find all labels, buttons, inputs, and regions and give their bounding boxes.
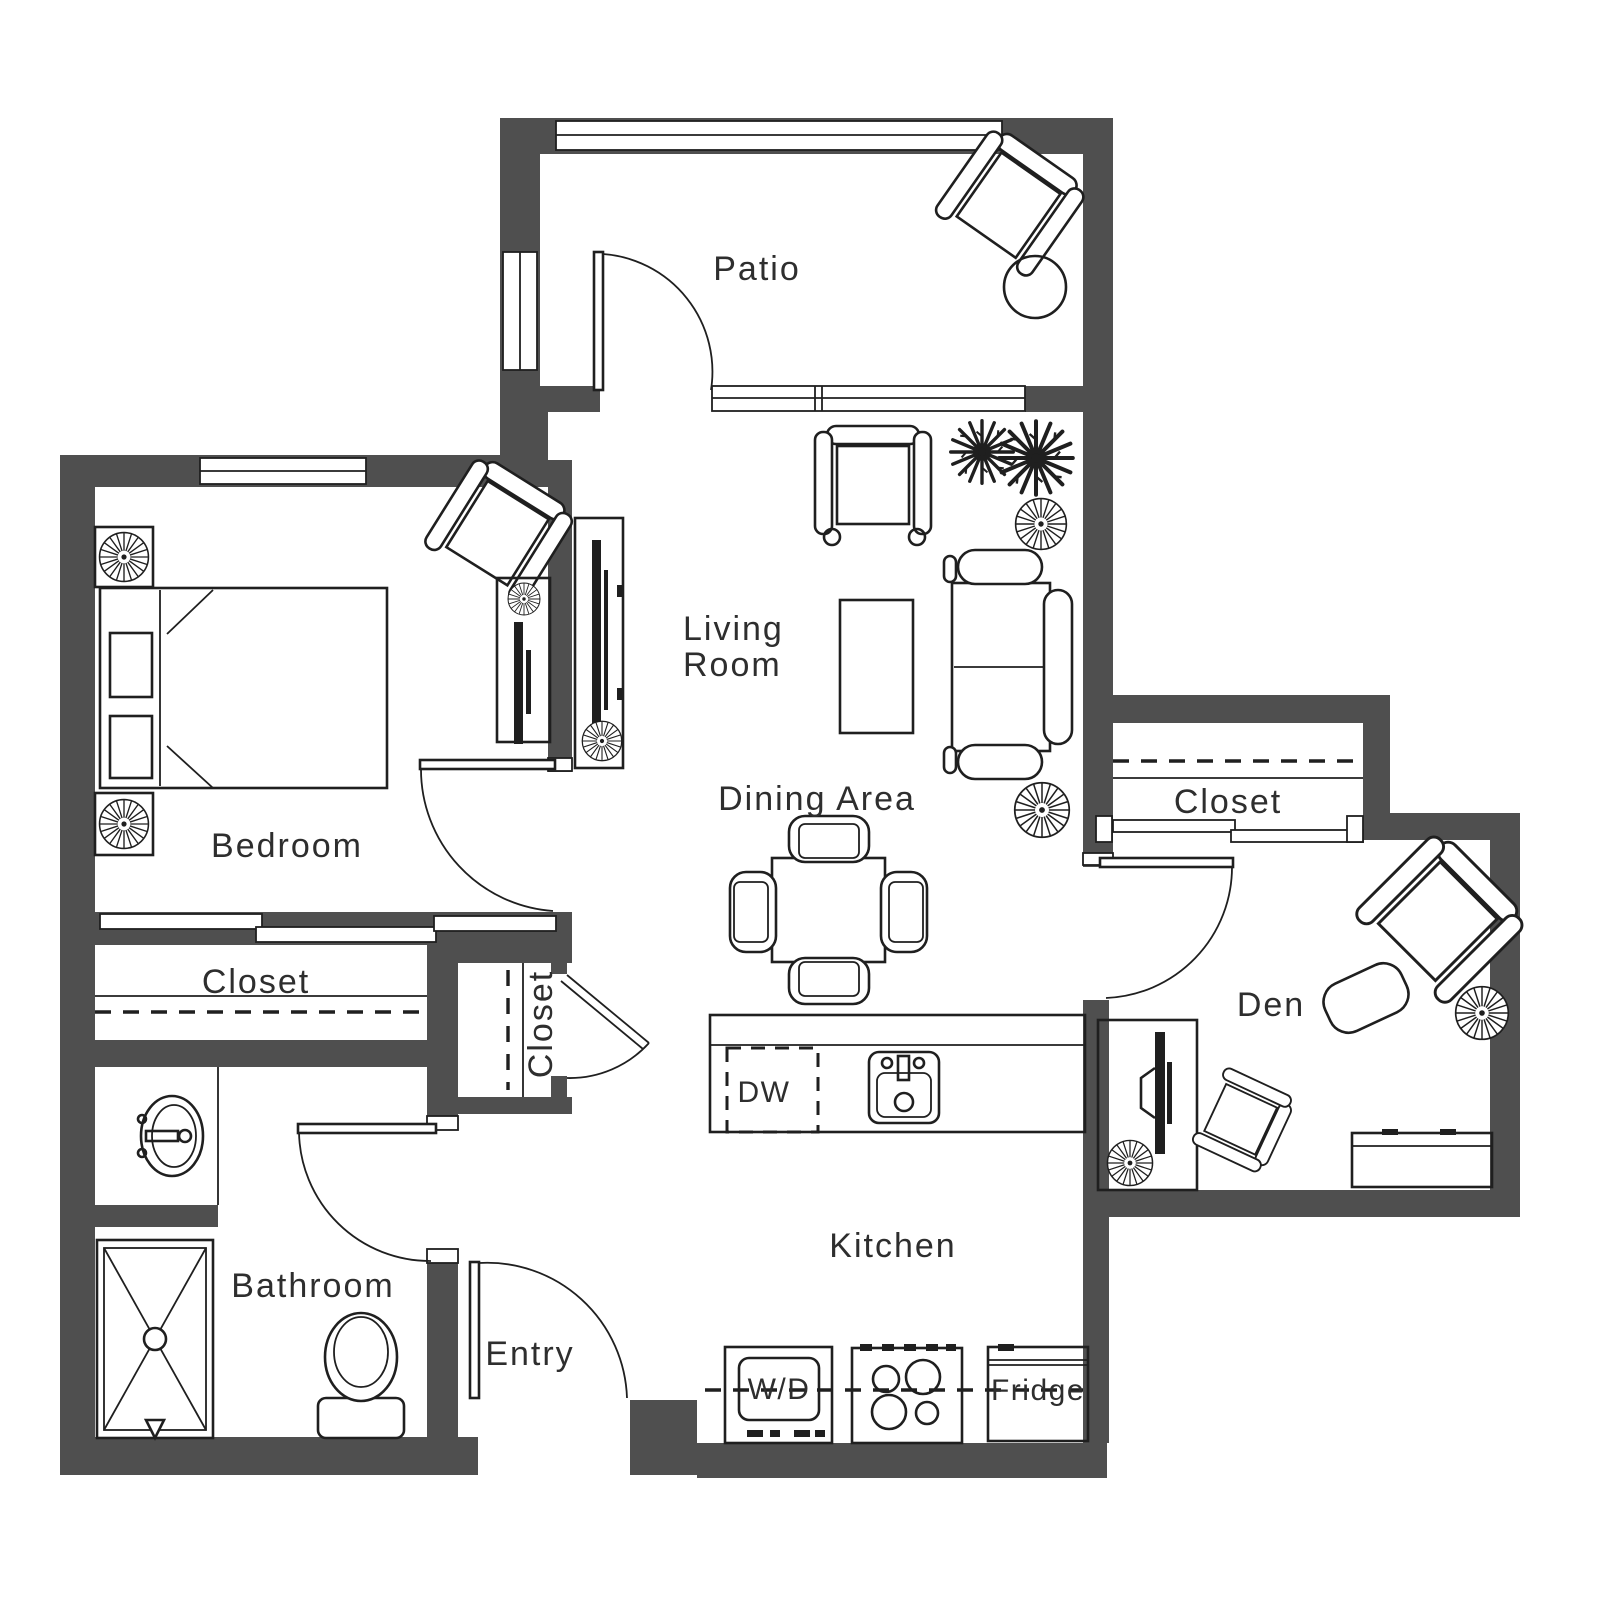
patio-door [594,252,712,390]
stove [852,1344,962,1443]
label-dining-area: Dining Area [718,780,916,818]
dining-chair [730,872,776,952]
coffee-table [840,600,913,733]
bedroom-furniture [95,452,578,855]
bedroom-door [420,760,555,911]
office-chair [1191,1067,1297,1176]
dining-chair [789,958,869,1004]
label-kitchen: Kitchen [829,1227,956,1265]
patio-top-window [556,121,1002,150]
label-dishwasher: DW [738,1076,791,1109]
label-patio: Patio [713,250,801,288]
potted-plant [1016,499,1067,550]
label-entry-closet: Closet [522,970,560,1078]
den-door [1100,858,1233,998]
floor-plan-page: Patio Living Room Dining Area Bedroom Cl… [0,0,1600,1600]
bed [100,588,387,788]
dining-chair [789,816,869,862]
patio-bottom-window [712,386,1025,411]
kitchen-sink [869,1052,939,1123]
bedroom-dresser [497,578,550,744]
living-armchair [815,426,931,545]
dining-table [772,858,885,962]
label-entry: Entry [485,1335,574,1373]
potted-plant [1015,783,1070,838]
plant-tree [999,421,1073,495]
dining-furniture [730,816,927,1004]
label-den-closet: Closet [1174,783,1282,821]
living-room-furniture [575,421,1073,838]
label-living-room-1: Living [683,610,784,648]
label-fridge: Fridge [991,1374,1085,1407]
potted-plant [1107,1140,1152,1185]
den-furniture [1098,829,1530,1190]
potted-plant [100,533,149,582]
entry-door [470,1262,627,1398]
vanity-sink [138,1067,218,1205]
bathroom-door [298,1124,436,1261]
patio-left-window [503,252,537,370]
label-living-room-2: Room [683,646,782,684]
potted-plant [100,800,149,849]
label-bathroom: Bathroom [231,1267,394,1305]
potted-plant [508,583,540,615]
toilet [318,1313,404,1438]
bedroom-window [200,458,366,484]
dining-chair [881,872,927,952]
label-bedroom-closet: Closet [202,963,310,1001]
plant-tree [951,421,1014,484]
potted-plant [1456,987,1509,1040]
label-washer-dryer: W/D [748,1373,811,1406]
potted-plant [582,721,621,760]
den-cabinet [1352,1129,1492,1187]
label-bedroom: Bedroom [211,827,363,865]
shower [97,1240,213,1438]
bathroom-fixtures [97,1067,404,1438]
ottoman [1317,957,1415,1040]
tv-console [575,518,623,768]
sofa [944,550,1072,779]
entry-closet-door [561,975,649,1078]
desk-monitor [1141,1032,1172,1154]
label-den: Den [1237,986,1305,1024]
floor-plan-drawing: Patio Living Room Dining Area Bedroom Cl… [0,0,1600,1600]
